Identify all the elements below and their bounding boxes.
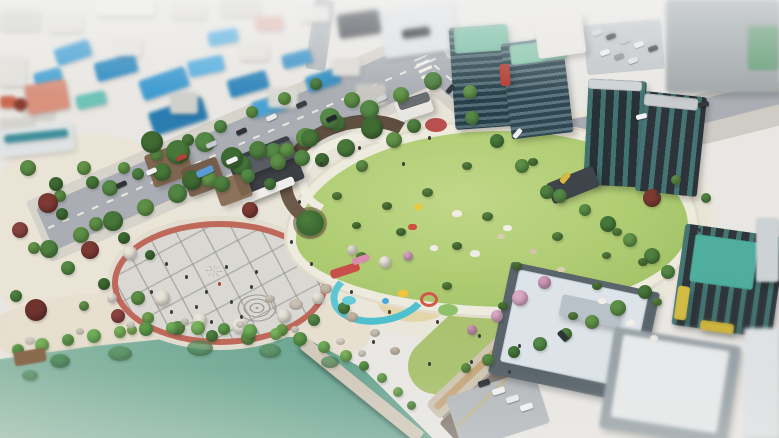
person [218, 282, 221, 286]
tent [470, 250, 480, 257]
person [428, 136, 431, 140]
tiltshift-blur-bottom-left [0, 308, 270, 438]
car [698, 101, 710, 109]
person [230, 300, 233, 304]
bus [195, 165, 214, 179]
flower-garden [425, 118, 447, 132]
car [205, 140, 217, 149]
person [372, 340, 375, 344]
person [205, 290, 208, 294]
person [590, 132, 593, 136]
car [115, 180, 127, 189]
person [436, 320, 439, 324]
play-dome [382, 298, 389, 304]
tent [452, 210, 462, 217]
pond [342, 296, 356, 305]
person [255, 270, 258, 274]
picnic-mat [497, 234, 505, 239]
person [608, 152, 611, 156]
picnic-mat-red [408, 224, 417, 230]
tiltshift-blur-bottom-right [529, 278, 779, 438]
car [175, 153, 187, 162]
person [290, 240, 293, 244]
picnic-mat [529, 249, 537, 254]
picnic-mat-yellow [414, 204, 423, 210]
shrub [452, 242, 462, 250]
shrub [482, 212, 493, 221]
person [165, 262, 168, 266]
shrub [612, 228, 622, 236]
picnic-mat [557, 267, 565, 272]
person [185, 275, 188, 279]
car [636, 113, 648, 121]
play-slide [398, 290, 408, 297]
shrub [422, 188, 433, 197]
person [656, 192, 659, 196]
person [298, 200, 301, 204]
person [388, 310, 391, 314]
person [402, 162, 405, 166]
shrub [382, 202, 392, 210]
person [478, 334, 481, 338]
aerial-park-render [0, 0, 779, 438]
car [325, 114, 337, 123]
shrub [528, 158, 538, 166]
person [698, 228, 701, 232]
shrub [352, 222, 361, 229]
person [358, 146, 361, 150]
person [618, 182, 621, 186]
person [470, 360, 473, 364]
car [235, 127, 247, 136]
person [225, 265, 228, 269]
tiltshift-blur-top [0, 0, 779, 64]
tent [430, 245, 438, 251]
person [350, 290, 353, 294]
person [320, 162, 323, 166]
shrub [332, 192, 342, 200]
shrub [442, 282, 452, 290]
shrub [638, 258, 648, 266]
shrub [602, 252, 611, 259]
shrub [552, 232, 563, 241]
yellow-car [559, 171, 571, 184]
car [265, 113, 277, 122]
car [295, 100, 307, 109]
play-mound [438, 304, 458, 316]
shrub [462, 162, 472, 170]
shrub [512, 262, 522, 270]
flower-bed [351, 253, 370, 265]
play-ring [420, 292, 438, 307]
person [250, 285, 253, 289]
car [226, 156, 239, 165]
person [518, 344, 521, 348]
shrub [396, 228, 406, 236]
car [145, 167, 157, 176]
person [428, 362, 431, 366]
shrub [498, 302, 508, 310]
person [150, 290, 153, 294]
person [310, 262, 313, 266]
car [512, 128, 523, 140]
tent [503, 225, 512, 231]
